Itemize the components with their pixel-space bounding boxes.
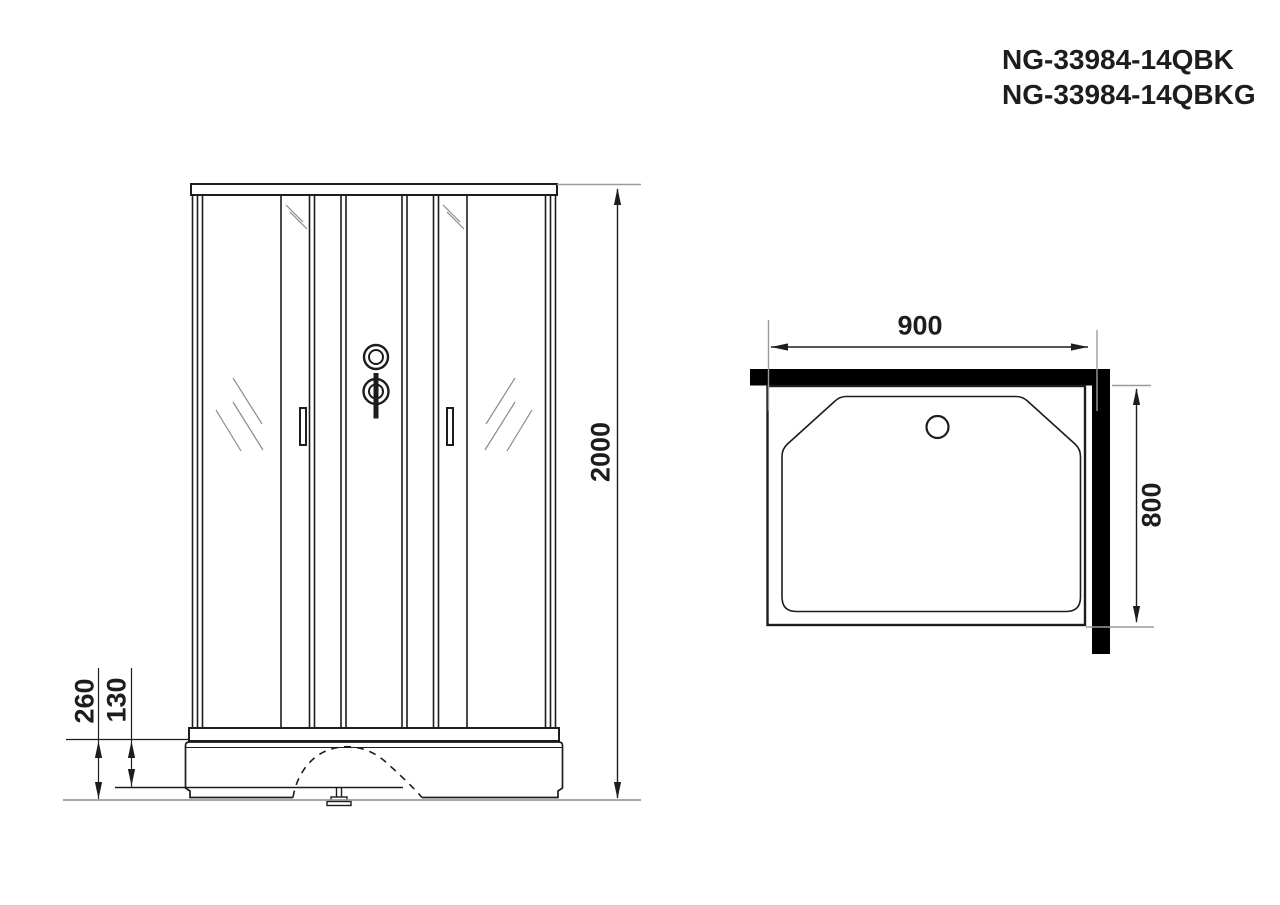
shower-mixer <box>364 345 389 419</box>
drain-hole <box>927 416 949 438</box>
frame-and-panel-lines <box>193 195 556 728</box>
model-number-line-1: NG-33984-14QBK <box>1002 42 1256 77</box>
dim-label-depth-800: 800 <box>1137 482 1168 527</box>
door-handle-left <box>300 408 306 445</box>
tray-outer-outline <box>768 386 1086 625</box>
dim-height-2000 <box>557 185 641 800</box>
tray-inner-shape <box>782 397 1081 612</box>
dim-label-base-260: 260 <box>70 678 101 723</box>
top-rail <box>191 184 557 195</box>
door-handle-right <box>447 408 453 445</box>
back-wall-bar <box>750 369 1093 386</box>
front-view <box>186 184 563 806</box>
dim-label-height-2000: 2000 <box>586 422 617 482</box>
access-panel-dashed-arc <box>293 747 422 798</box>
model-number-line-2: NG-33984-14QBKG <box>1002 77 1256 112</box>
bottom-rail <box>189 728 559 741</box>
model-numbers: NG-33984-14QBK NG-33984-14QBKG <box>1002 42 1256 112</box>
top-view <box>750 369 1110 654</box>
adjustable-foot <box>327 788 351 806</box>
dim-label-base-130: 130 <box>102 677 133 722</box>
shower-cabin-drawing <box>0 0 1280 905</box>
tray-skirt <box>186 742 563 798</box>
front-view-dimensions <box>63 185 641 801</box>
side-wall-bar <box>1092 369 1110 654</box>
dim-label-width-900: 900 <box>897 311 942 342</box>
technical-drawing-page: NG-33984-14QBK NG-33984-14QBKG 2000 260 … <box>0 0 1280 905</box>
